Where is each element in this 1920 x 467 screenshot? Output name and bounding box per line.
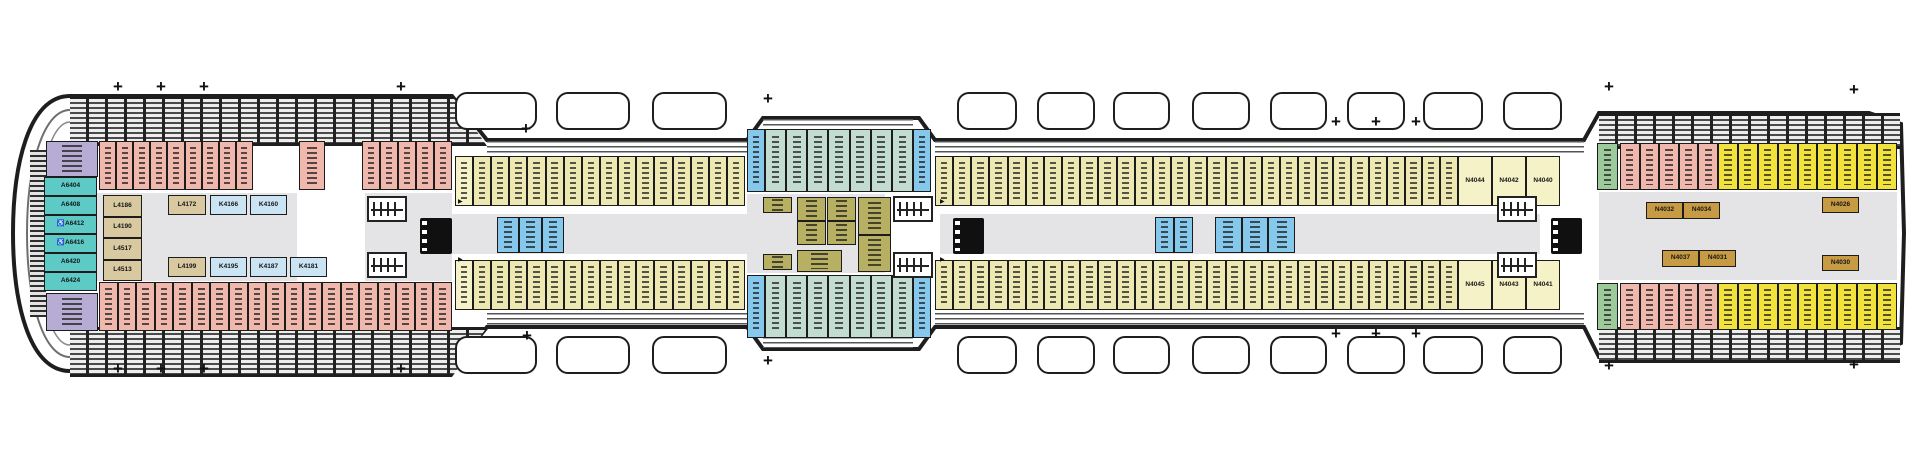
cabin-section-stern-pink-bot: [1620, 283, 1718, 330]
cabin[interactable]: [118, 282, 137, 331]
cabin[interactable]: [473, 260, 491, 310]
cabin[interactable]: [1098, 156, 1116, 206]
cabin[interactable]: [765, 129, 786, 192]
railing-band: [487, 313, 747, 326]
plus-marker: +: [1371, 329, 1381, 339]
cabin[interactable]: [1062, 260, 1080, 310]
cabin[interactable]: [989, 156, 1007, 206]
cabin[interactable]: [1405, 260, 1423, 310]
cabin[interactable]: [1080, 260, 1098, 310]
cabin[interactable]: [173, 282, 192, 331]
cabin[interactable]: [1135, 260, 1153, 310]
cabin-section-khaki-top-3: [1280, 156, 1458, 206]
railing-band: [935, 313, 1584, 326]
cabin[interactable]: L4517: [103, 238, 142, 260]
cabin-section-purple-corner-bottom: [46, 293, 98, 331]
cabin[interactable]: [1280, 156, 1298, 206]
cabin[interactable]: [1189, 260, 1207, 310]
cabin[interactable]: [136, 282, 155, 331]
plus-marker: +: [1331, 329, 1341, 339]
cabin[interactable]: [99, 141, 116, 190]
cabin[interactable]: L4172: [168, 195, 206, 215]
cabin[interactable]: [248, 282, 267, 331]
cabin-section-stern-yellow-top: [1718, 143, 1897, 190]
plus-marker: +: [1331, 117, 1341, 127]
cabin[interactable]: [1044, 156, 1062, 206]
cabin[interactable]: [654, 156, 672, 206]
cabin-section-bump-cap-tr: [913, 129, 931, 192]
cabin[interactable]: [1405, 156, 1423, 206]
cabin[interactable]: [673, 260, 691, 310]
cabin[interactable]: [1333, 156, 1351, 206]
cabin[interactable]: [133, 141, 150, 190]
cabin[interactable]: [46, 141, 98, 177]
plus-marker: +: [521, 124, 531, 134]
plus-marker: +: [1411, 117, 1421, 127]
cabin[interactable]: [1298, 260, 1316, 310]
cabin-section-khaki-top-2: [935, 156, 1280, 206]
cabin-section-khaki-bot-3: [1280, 260, 1458, 310]
cabin[interactable]: [396, 282, 415, 331]
cabin[interactable]: [1698, 283, 1718, 330]
cabin[interactable]: [807, 275, 828, 338]
cabin[interactable]: [434, 141, 452, 190]
cabin[interactable]: [527, 156, 545, 206]
cabin[interactable]: [1877, 283, 1897, 330]
cabin-section-bump-cap-br: [913, 275, 931, 338]
stairs-icon: [1497, 252, 1537, 278]
cabin[interactable]: [46, 293, 98, 331]
lifeboat: [1503, 92, 1562, 130]
cabin[interactable]: [1244, 260, 1262, 310]
cabin[interactable]: [455, 260, 473, 310]
cabin-section-gold-pair-bot: N4037N4031: [1662, 250, 1736, 267]
cabin[interactable]: K4187: [250, 257, 287, 277]
cabin[interactable]: [953, 156, 971, 206]
cabin[interactable]: K4195: [210, 257, 247, 277]
cabin[interactable]: [509, 156, 527, 206]
cabin[interactable]: [519, 217, 541, 253]
cabin-section-mid-row-top-3: K4160: [250, 195, 287, 215]
lifeboat: [1503, 336, 1562, 374]
cabin[interactable]: [1817, 283, 1837, 330]
cabin[interactable]: [192, 282, 211, 331]
cabin-section-bump-cap-bl: [747, 275, 765, 338]
cabin[interactable]: [1798, 283, 1818, 330]
cabin-section-khaki-bot-1: [473, 260, 745, 310]
plus-marker: +: [1604, 361, 1614, 371]
plus-marker: +: [763, 94, 773, 104]
cabin[interactable]: [1189, 156, 1207, 206]
cabin-section-mid-row-top-2: K4166: [210, 195, 247, 215]
cabin[interactable]: [1718, 143, 1738, 190]
cabin[interactable]: [1877, 143, 1897, 190]
cabin[interactable]: [618, 260, 636, 310]
cabin[interactable]: [971, 156, 989, 206]
lifeboat: [1037, 92, 1095, 130]
cabin[interactable]: [1242, 217, 1269, 253]
cabin[interactable]: [691, 156, 709, 206]
cabin[interactable]: [807, 129, 828, 192]
cabin[interactable]: [763, 254, 792, 270]
cabin[interactable]: [797, 250, 842, 272]
cabin[interactable]: ♿A6412: [44, 215, 97, 234]
cabin[interactable]: [564, 156, 582, 206]
plus-marker: +: [1604, 82, 1614, 92]
cabin[interactable]: [497, 217, 519, 253]
cabin-section-plain-bot-l: [455, 260, 473, 310]
cabin[interactable]: [1387, 260, 1405, 310]
cabin[interactable]: [850, 275, 871, 338]
lifeboat: [1192, 336, 1250, 374]
cabin[interactable]: [491, 156, 509, 206]
railing-band: [487, 141, 747, 154]
cabin[interactable]: N4030: [1822, 255, 1859, 271]
cabin[interactable]: [433, 282, 452, 331]
cabin[interactable]: [491, 260, 509, 310]
cabin[interactable]: N4032: [1646, 202, 1683, 219]
cabin-section-pink-top-a: [99, 141, 253, 190]
cabin[interactable]: [1316, 156, 1334, 206]
cabin[interactable]: [1207, 156, 1225, 206]
cabin[interactable]: [1778, 283, 1798, 330]
cabin[interactable]: [1738, 143, 1758, 190]
cabin[interactable]: L4199: [168, 257, 206, 277]
cabin[interactable]: [1026, 260, 1044, 310]
stairs-icon: [367, 252, 407, 278]
cabin[interactable]: [415, 282, 434, 331]
cabin[interactable]: [185, 141, 202, 190]
cabin[interactable]: [1798, 143, 1818, 190]
cabin[interactable]: [1620, 143, 1640, 190]
cabin[interactable]: ♿A6416: [44, 234, 97, 253]
cabin[interactable]: [1155, 217, 1174, 253]
cabin[interactable]: [971, 260, 989, 310]
cabin[interactable]: [1817, 143, 1837, 190]
cabin[interactable]: [828, 129, 849, 192]
cabin[interactable]: [266, 282, 285, 331]
cabin[interactable]: [1008, 260, 1026, 310]
cabin[interactable]: [1008, 156, 1026, 206]
cabin[interactable]: [1268, 217, 1295, 253]
cabin[interactable]: [747, 275, 765, 338]
cabin-section-mid-row-bot-4: K4181: [290, 257, 327, 277]
cabin-section-blue-group-1: [497, 217, 564, 253]
plus-marker: +: [113, 82, 123, 92]
cabin[interactable]: [150, 141, 167, 190]
cabin[interactable]: [1280, 260, 1298, 310]
cabin[interactable]: [827, 197, 856, 221]
cabin-section-mid-row-bot-1: L4199: [168, 257, 206, 277]
cabin[interactable]: L4513: [103, 260, 142, 282]
cabin[interactable]: [1422, 156, 1440, 206]
cabin[interactable]: [210, 282, 229, 331]
cabin[interactable]: [636, 260, 654, 310]
cabin-section-stern-pink-top: [1620, 143, 1718, 190]
cabin[interactable]: [827, 221, 856, 245]
cabin[interactable]: [1215, 217, 1242, 253]
cabin[interactable]: [691, 260, 709, 310]
cabin[interactable]: [1117, 156, 1135, 206]
cabin[interactable]: [1333, 260, 1351, 310]
plus-marker: +: [1849, 360, 1859, 370]
cabin[interactable]: N4044: [1458, 156, 1492, 206]
stairs-icon: [1497, 196, 1537, 222]
cabin[interactable]: [398, 141, 416, 190]
cabin[interactable]: [1640, 283, 1660, 330]
elevator-block: [420, 218, 452, 254]
cabin[interactable]: [1758, 283, 1778, 330]
cabin[interactable]: [618, 156, 636, 206]
cabin[interactable]: [1044, 260, 1062, 310]
cabin[interactable]: [1620, 283, 1640, 330]
cabin[interactable]: [1659, 283, 1679, 330]
cabin-section-olive-bottom: [797, 250, 842, 272]
stairs-icon: [893, 252, 933, 278]
elevator-block: [953, 218, 984, 254]
cabin[interactable]: [1080, 156, 1098, 206]
cabin[interactable]: [473, 156, 491, 206]
cabin[interactable]: [527, 260, 545, 310]
cabin[interactable]: [1226, 260, 1244, 310]
lifeboat: [957, 336, 1017, 374]
cabin[interactable]: [1351, 260, 1369, 310]
deck-plan: A6404A6408♿A6412♿A6416A6420A6424L4186L41…: [0, 0, 1920, 467]
railing-band: [763, 337, 913, 348]
cabin[interactable]: [797, 197, 826, 221]
cabin[interactable]: [1778, 143, 1798, 190]
cabin[interactable]: K4181: [290, 257, 327, 277]
cabin[interactable]: [1698, 143, 1718, 190]
cabin[interactable]: [892, 129, 913, 192]
cabin[interactable]: [1026, 156, 1044, 206]
lifeboat: [957, 92, 1017, 130]
cabin[interactable]: [1440, 260, 1458, 310]
cabin-section-khaki-bot-2: [935, 260, 1280, 310]
cabin[interactable]: [709, 156, 727, 206]
cabin[interactable]: [953, 260, 971, 310]
cabin[interactable]: [1659, 143, 1679, 190]
cabin[interactable]: N4034: [1683, 202, 1720, 219]
cabin[interactable]: L4190: [103, 217, 142, 239]
cabin[interactable]: [1738, 283, 1758, 330]
cabin[interactable]: [1298, 156, 1316, 206]
cabin-section-pink-top-c: [362, 141, 452, 190]
cabin[interactable]: [1244, 156, 1262, 206]
cabin[interactable]: K4160: [250, 195, 287, 215]
cabin[interactable]: [167, 141, 184, 190]
cabin-section-bow-suites: A6404A6408♿A6412♿A6416A6420A6424: [44, 177, 97, 291]
cabin[interactable]: [116, 141, 133, 190]
cabin[interactable]: [747, 129, 765, 192]
railing-band: [935, 141, 1584, 154]
cabin[interactable]: [582, 260, 600, 310]
cabin[interactable]: [362, 141, 380, 190]
plus-marker: +: [199, 364, 209, 374]
lifeboat: [652, 92, 727, 130]
cabin[interactable]: [582, 156, 600, 206]
cabin[interactable]: [1422, 260, 1440, 310]
cabin[interactable]: [1207, 260, 1225, 310]
cabin[interactable]: [542, 217, 564, 253]
cabin[interactable]: N4031: [1699, 250, 1736, 267]
lifeboat: [1423, 92, 1483, 130]
cabin[interactable]: [1262, 260, 1280, 310]
cabin[interactable]: [600, 156, 618, 206]
cabin[interactable]: [229, 282, 248, 331]
cabin[interactable]: [299, 141, 325, 190]
cabin[interactable]: [359, 282, 378, 331]
plus-marker: +: [1371, 117, 1381, 127]
lifeboat: [556, 336, 630, 374]
cabin[interactable]: [673, 156, 691, 206]
cabin[interactable]: N4026: [1822, 197, 1859, 213]
plus-marker: +: [522, 331, 532, 341]
cabin[interactable]: [786, 275, 807, 338]
cabin[interactable]: [1153, 156, 1171, 206]
cabin[interactable]: [1718, 283, 1738, 330]
cabin[interactable]: [1440, 156, 1458, 206]
cabin-section-pink-bottom: [99, 282, 452, 331]
cabin[interactable]: [935, 260, 953, 310]
cabin[interactable]: [858, 235, 891, 273]
cabin[interactable]: [727, 156, 745, 206]
cabin[interactable]: [564, 260, 582, 310]
corridor-arrow-icon: ▶: [458, 257, 463, 263]
lifeboat: [1037, 336, 1095, 374]
cabin[interactable]: [1837, 143, 1857, 190]
cabin[interactable]: [1153, 260, 1171, 310]
deck-gray-area: [452, 214, 1597, 254]
cabin-section-mid-row-bot-3: K4187: [250, 257, 287, 277]
cabin[interactable]: [155, 282, 174, 331]
cabin[interactable]: [341, 282, 360, 331]
cabin[interactable]: [709, 260, 727, 310]
cabin[interactable]: [654, 260, 672, 310]
hatch-band: [70, 96, 487, 146]
cabin[interactable]: [1316, 260, 1334, 310]
cabin[interactable]: [765, 275, 786, 338]
stairs-icon: [367, 196, 407, 222]
cabin[interactable]: [786, 129, 807, 192]
cabin[interactable]: A6404: [44, 177, 97, 196]
cabin[interactable]: [1351, 156, 1369, 206]
cabin-section-stern-yellow-bot: [1718, 283, 1897, 330]
cabin[interactable]: [1171, 260, 1189, 310]
cabin[interactable]: [1174, 217, 1193, 253]
hatch-band: [70, 327, 487, 377]
corridor-arrow-icon: ▶: [940, 199, 945, 205]
cabin[interactable]: L4186: [103, 195, 142, 217]
cabin[interactable]: [892, 275, 913, 338]
cabin[interactable]: [1135, 156, 1153, 206]
cabin[interactable]: [1369, 260, 1387, 310]
cabin[interactable]: [1758, 143, 1778, 190]
lifeboat: [1113, 92, 1170, 130]
cabin-section-olive-col-2: [827, 197, 856, 245]
cabin[interactable]: [1597, 283, 1618, 330]
cabin[interactable]: [1117, 260, 1135, 310]
cabin[interactable]: [1679, 143, 1699, 190]
cabin[interactable]: [1597, 143, 1618, 190]
cabin[interactable]: [871, 129, 892, 192]
cabin[interactable]: [913, 275, 931, 338]
cabin[interactable]: [378, 282, 397, 331]
cabin[interactable]: [509, 260, 527, 310]
cabin[interactable]: [727, 260, 745, 310]
cabin[interactable]: [850, 129, 871, 192]
cabin[interactable]: [763, 197, 792, 213]
cabin[interactable]: [600, 260, 618, 310]
cabin-section-olive-small-top: [763, 197, 792, 213]
plus-marker: +: [199, 82, 209, 92]
cabin[interactable]: [797, 221, 826, 245]
cabin[interactable]: [285, 282, 304, 331]
cabin[interactable]: [1369, 156, 1387, 206]
cabin[interactable]: [636, 156, 654, 206]
cabin[interactable]: [1679, 283, 1699, 330]
cabin[interactable]: [1857, 283, 1877, 330]
cabin-section-gold-single-bot: N4030: [1822, 255, 1859, 271]
cabin[interactable]: [1837, 283, 1857, 330]
cabin-section-blue-group-2: [1155, 217, 1193, 253]
lifeboat: [1270, 336, 1327, 374]
cabin-section-green-top: [1597, 143, 1618, 190]
cabin[interactable]: [416, 141, 434, 190]
cabin-section-green-bot: [1597, 283, 1618, 330]
cabin[interactable]: [1062, 156, 1080, 206]
cabin[interactable]: [1640, 143, 1660, 190]
cabin[interactable]: [913, 129, 931, 192]
cabin[interactable]: [1262, 156, 1280, 206]
lifeboat: [1192, 92, 1250, 130]
cabin[interactable]: [202, 141, 219, 190]
cabin[interactable]: [1226, 156, 1244, 206]
plus-marker: +: [763, 356, 773, 366]
plus-marker: +: [156, 364, 166, 374]
cabin[interactable]: N4037: [1662, 250, 1699, 267]
cabin[interactable]: N4045: [1458, 260, 1492, 310]
cabin[interactable]: [828, 275, 849, 338]
cabin[interactable]: [989, 260, 1007, 310]
cabin[interactable]: A6420: [44, 253, 97, 272]
cabin-section-gold-single-top: N4026: [1822, 197, 1859, 213]
cabin[interactable]: [858, 197, 891, 235]
plus-marker: +: [1411, 329, 1421, 339]
cabin[interactable]: A6424: [44, 272, 97, 291]
cabin[interactable]: K4166: [210, 195, 247, 215]
cabin[interactable]: [236, 141, 253, 190]
cabin-section-bump-cap-tl: [747, 129, 765, 192]
cabin-section-gold-pair-top: N4032N4034: [1646, 202, 1720, 219]
cabin[interactable]: [871, 275, 892, 338]
cabin[interactable]: [322, 282, 341, 331]
corridor-arrow-icon: ▶: [940, 257, 945, 263]
cabin[interactable]: [380, 141, 398, 190]
cabin-section-olive-tall: [858, 197, 891, 272]
cabin[interactable]: A6408: [44, 196, 97, 215]
cabin[interactable]: [1857, 143, 1877, 190]
cabin[interactable]: [1171, 156, 1189, 206]
cabin[interactable]: [546, 156, 564, 206]
cabin[interactable]: [1387, 156, 1405, 206]
cabin[interactable]: [99, 282, 118, 331]
cabin-section-purple-corner-top: [46, 141, 98, 177]
cabin[interactable]: [219, 141, 236, 190]
cabin[interactable]: [546, 260, 564, 310]
cabin[interactable]: [1098, 260, 1116, 310]
cabin[interactable]: [303, 282, 322, 331]
